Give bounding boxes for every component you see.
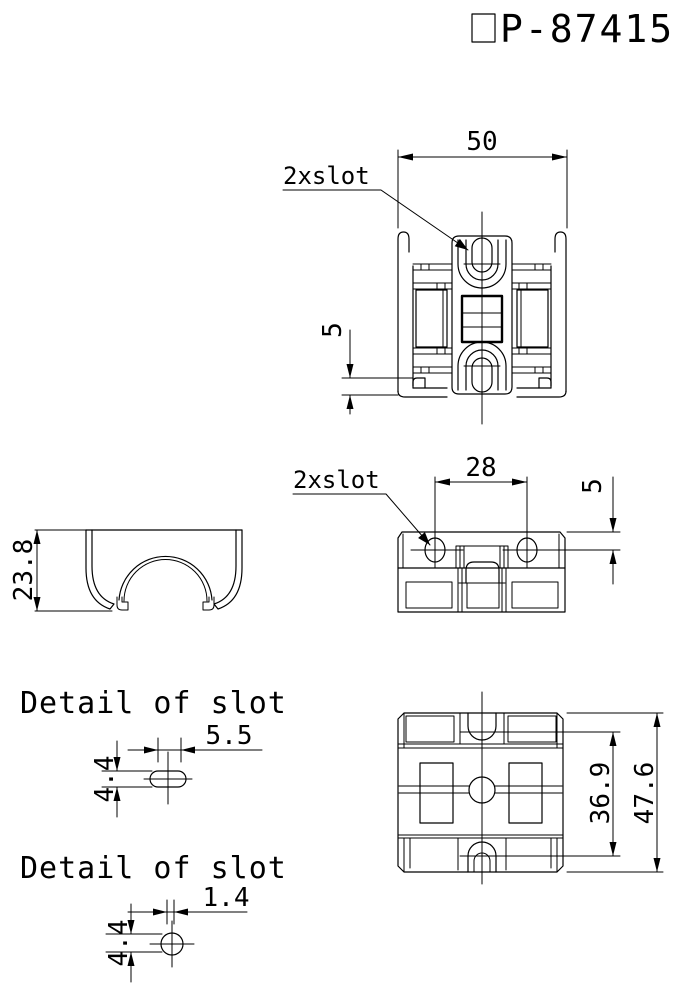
dim-width-1-4: 1.4 [128, 883, 249, 924]
detail-1-heading: Detail of slot [20, 686, 287, 721]
arrowhead [654, 858, 661, 872]
dim-height-4-4: 4.4 [90, 741, 152, 817]
arrowhead [435, 479, 450, 486]
dim-36-9-value: 36.9 [586, 762, 616, 825]
callout-2xslot-top: 2xslot [283, 162, 468, 250]
dim-5-value: 5 [318, 322, 348, 338]
title-box-glyph [472, 14, 495, 42]
dim-inner-36-9: 36.9 [460, 732, 620, 856]
dim-1-4-value: 1.4 [203, 883, 250, 913]
detail-2-slot [150, 921, 194, 967]
callout-2xslot-front: 2xslot [293, 466, 430, 545]
drawing-canvas: P-87415 [0, 0, 683, 1000]
arrowhead [512, 479, 527, 486]
arrowhead [398, 154, 413, 161]
dim-28-value: 28 [465, 453, 496, 483]
arrowhead [610, 550, 617, 564]
arrowhead [174, 909, 188, 916]
dim-23-8-value: 23.8 [9, 539, 39, 602]
part-number: P-87415 [500, 7, 674, 51]
dim-5-value: 5 [578, 478, 608, 494]
arrowhead [654, 713, 661, 727]
dim-height-23-8: 23.8 [9, 530, 112, 611]
dim-5-5-value: 5.5 [206, 721, 253, 751]
dim-50-value: 50 [466, 127, 497, 157]
arrowhead [153, 909, 167, 916]
arrowhead [610, 518, 617, 532]
dim-4-4-value: 4.4 [90, 756, 120, 803]
slot-detail-1: Detail of slot 5.5 4.4 [20, 686, 287, 817]
front-view-body [398, 477, 620, 612]
arrowhead [181, 747, 195, 754]
detail-2-heading: Detail of slot [20, 851, 287, 886]
arrowhead [610, 842, 617, 856]
slot-detail-2: Detail of slot 1.4 4.4 [20, 851, 287, 982]
dim-step-5: 5 [318, 322, 413, 414]
front-view: 28 2xslot 5 [293, 453, 620, 612]
drawing-sheet: P-87415 [0, 0, 683, 1000]
detail-1-slot [144, 752, 192, 804]
dim-offset-5: 5 [578, 477, 617, 584]
top-view: 50 2xslot 5 [283, 127, 567, 424]
dim-spacing-28: 28 [435, 453, 527, 486]
bottom-view: 36.9 47.6 [398, 692, 663, 884]
bottom-view-body [398, 713, 563, 872]
arrowhead [144, 747, 158, 754]
side-view: 23.8 [9, 530, 242, 611]
arrowhead [347, 395, 354, 409]
side-view-body [86, 530, 242, 610]
arch-inner [124, 559, 207, 601]
callout-label: 2xslot [293, 466, 380, 494]
callout-label: 2xslot [283, 162, 370, 190]
right-rails [512, 264, 551, 373]
dim-4-4b-value: 4.4 [104, 920, 134, 967]
drawing-title: P-87415 [472, 7, 674, 51]
arrowhead [552, 154, 567, 161]
dim-height-4-4b: 4.4 [104, 904, 162, 982]
dim-47-6-value: 47.6 [630, 762, 660, 825]
arch-outer [119, 556, 212, 600]
arrowhead [610, 732, 617, 746]
arrowhead [347, 364, 354, 378]
dim-length-5-5: 5.5 [128, 721, 262, 762]
left-rails [413, 264, 452, 373]
